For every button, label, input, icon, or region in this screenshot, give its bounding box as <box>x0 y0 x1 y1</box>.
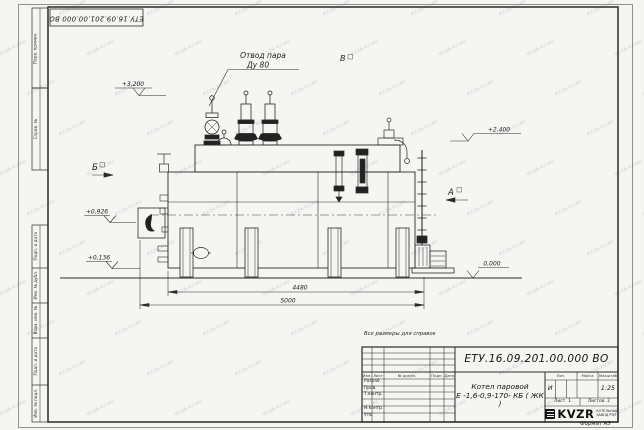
elevation-0926: +0,926 <box>86 209 108 216</box>
scale-value: 1:25 <box>598 380 618 398</box>
view-label-b: Б <box>92 163 98 173</box>
row-razrab: Разраб. <box>363 380 386 385</box>
drawing-sheet: KVZR-KV.RUKVZR-KV.RUKVZR-KV.RUKVZR-KV.RU… <box>0 0 644 430</box>
col-docum: № докум. <box>384 372 430 379</box>
dim-5000: 5000 <box>280 298 295 305</box>
row-nkontr: Н.контр. <box>363 407 386 412</box>
elevation-marks <box>84 88 521 278</box>
col-data: Дата <box>444 372 455 379</box>
elevation-0136: +0,136 <box>88 255 110 262</box>
top-left-valve <box>157 154 171 172</box>
product-name: Котел паровой Е -1,6-0,9-170- КБ ( ЖК ) <box>455 372 545 418</box>
side-label-inv-dubl: Инв. № дубл. <box>30 268 42 303</box>
drum-end-valve <box>384 118 410 164</box>
product-line1: Котел паровой <box>471 383 528 391</box>
company-logo: KVZR КОТЕЛЬНЫЙ ЗАВОД РЭП <box>545 406 618 422</box>
steam-outlet-label-2: Ду 80 <box>246 61 269 70</box>
view-label-a: А <box>447 188 454 198</box>
lit-value: И <box>545 380 556 398</box>
product-line2: Е -1,6-0,9-170- КБ ( ЖК ) <box>455 392 545 407</box>
support-legs <box>180 228 409 277</box>
format-label: Формат А3 <box>558 422 633 428</box>
mass-label: Масса <box>577 372 598 380</box>
row-tkontr: Т.контр. <box>363 393 386 398</box>
elevation-3200: +3,200 <box>122 81 144 88</box>
side-label-perv: Перв. примен. <box>30 8 42 88</box>
side-label-sprav: Справ. № <box>30 88 42 170</box>
water-level-gauges <box>334 149 368 202</box>
row-prov: Пров. <box>363 387 386 392</box>
side-label-podp1: Подп. и дата <box>30 225 42 268</box>
scale-label: Масштаб <box>598 372 618 380</box>
lit-label: Лит. <box>545 372 577 380</box>
kvzr-logo-subtext: КОТЕЛЬНЫЙ ЗАВОД РЭП <box>596 410 618 418</box>
sheets-total: Листов 2 <box>580 398 618 406</box>
view-arrows <box>92 55 468 203</box>
reference-note: Все размеры для справок <box>364 332 504 338</box>
side-label-vzam: Взам. инв. № <box>30 303 42 338</box>
downcomer-pipe <box>417 150 427 245</box>
elevation-0000: 0,000 <box>483 261 500 268</box>
steam-outlet-label-1: Отвод пара <box>240 51 286 60</box>
row-utv: Утв. <box>363 414 386 419</box>
elevation-2400: +2,400 <box>488 127 510 134</box>
col-izm: Изм. <box>362 372 372 379</box>
kvzr-logo-icon <box>545 409 555 419</box>
stamp-top-box: ЕТУ.16.09.201.00.000 ВО <box>50 9 143 26</box>
steam-drum <box>195 145 400 172</box>
stamp-top-text: ЕТУ.16.09.201.00.000 ВО <box>49 14 144 21</box>
view-label-v: В <box>340 54 346 63</box>
col-list: Лист <box>372 372 384 379</box>
side-label-inv-podl: Инв. № подл. <box>30 385 42 422</box>
safety-valves <box>217 91 282 145</box>
drawing-texts: Отвод пара Ду 80 +3,200 +2,400 +0,926 +0… <box>86 51 510 305</box>
sheet-number: Лист 1 <box>545 398 580 406</box>
col-podp: Подп. <box>430 372 444 379</box>
feed-pump <box>412 245 454 273</box>
doc-number: ЕТУ.16.09.201.00.000 ВО <box>455 347 618 372</box>
dim-4480: 4480 <box>292 285 307 292</box>
burner <box>138 195 168 262</box>
side-label-podp2: Подп. и дата <box>30 338 42 385</box>
steam-outlet-valve <box>204 96 220 145</box>
manhole <box>191 248 211 259</box>
kvzr-logo-word: KVZR <box>557 408 594 420</box>
